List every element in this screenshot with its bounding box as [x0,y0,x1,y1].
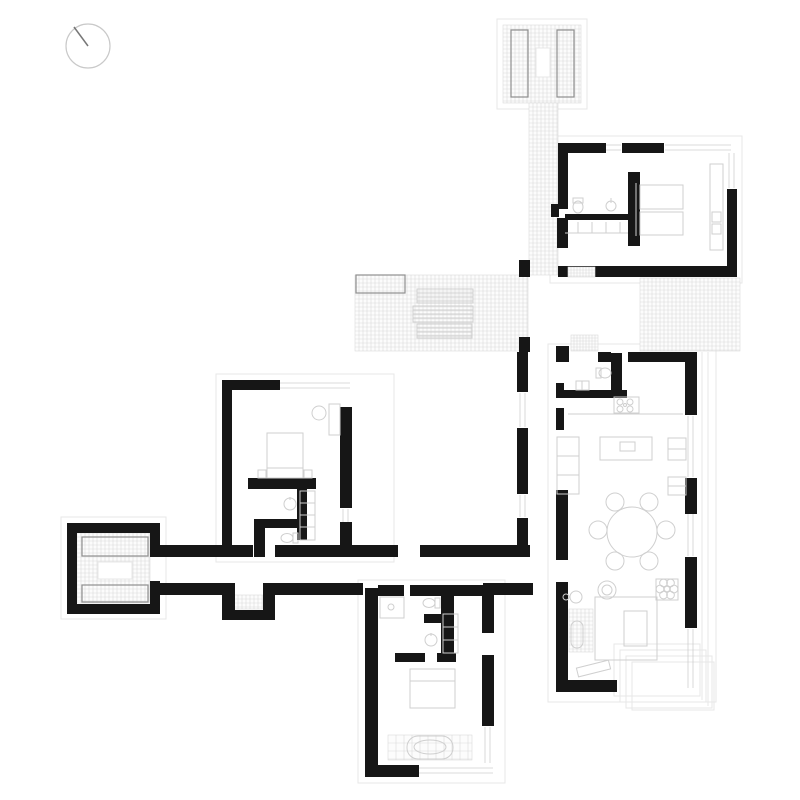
wall [67,523,77,614]
bed-1-mattress [640,212,683,235]
dining-chair [640,552,658,570]
window-grille-hall [571,335,598,351]
toilet-cistern [435,598,440,608]
wall [424,614,441,623]
wall [519,260,530,277]
bed-2 [267,433,303,478]
wall [517,428,528,494]
wall [685,352,697,415]
wall [395,653,425,662]
dining-table [607,507,657,557]
carport-center [536,48,550,77]
northeast-terrace-paving [640,278,740,351]
wall [622,143,664,153]
layer-tiles [77,25,740,609]
wall [556,490,568,560]
burner [617,406,623,412]
wardrobe-handle [712,224,721,234]
wall [378,585,404,596]
bathtub-platform [388,735,472,760]
wall [551,204,559,217]
wall [160,583,229,595]
floor-plan-page [0,0,800,800]
burner [627,399,633,405]
wall [160,545,253,557]
wall [556,408,564,430]
island-sink [620,442,635,451]
shower [380,597,404,618]
wall [565,214,628,220]
floor-plan-drawing [0,0,800,800]
dining-chair [606,552,624,570]
wall [275,545,398,557]
wall [340,522,352,557]
bench [576,660,610,677]
wall [685,557,697,628]
wall [222,380,232,557]
burner [617,399,623,405]
wall [248,478,316,489]
coffee-table [624,611,647,646]
pool-terrace-paving [355,275,528,351]
wall [482,655,494,726]
wardrobe-handle [712,212,721,222]
layer-eaves [61,19,742,783]
deck-step-3 [626,656,712,708]
north-indicator-needle [74,27,88,46]
entry-path-paving [529,103,558,275]
wall [727,189,737,277]
dining-chair [640,493,658,511]
toilet [281,534,293,543]
desk [329,404,340,435]
toilet [423,599,435,608]
layer-compass [66,24,110,68]
dining-chair [657,521,675,539]
wall [340,407,352,508]
wall [67,604,160,614]
wall [254,519,298,528]
wall [270,583,363,595]
wall [420,545,530,557]
kitchen-island [600,437,652,460]
wall [519,337,530,352]
bed-3 [410,669,455,708]
plant-center [664,586,670,592]
wall [556,582,568,692]
dining-chair [589,521,607,539]
wall [67,523,160,533]
nightstand [304,470,312,478]
rug [595,597,657,660]
wall [611,353,622,392]
wall [598,352,611,362]
wall [365,588,378,777]
wood-stove-top [570,591,582,603]
bed-1-mattress [640,185,683,209]
wall [556,680,617,692]
burner [627,406,633,412]
burner-knob [624,404,627,407]
wall [365,765,419,777]
wall [628,172,640,246]
armchair-seat [602,585,612,595]
wall [150,523,160,557]
courtyard-table [98,562,132,579]
wall [517,352,528,392]
dining-chair [606,493,624,511]
wall [685,478,697,514]
shelving-west [557,437,579,494]
wall [150,581,160,613]
desk-chair [312,406,326,420]
wall [556,383,564,398]
nightstand [258,470,266,478]
wall [482,592,494,633]
wall [437,653,456,662]
wall [558,143,568,209]
wardrobe [710,164,723,250]
wall [483,583,533,595]
window-grille-north [568,267,595,277]
wall [556,346,569,362]
armchair [598,581,616,599]
shower-drain [388,604,394,610]
